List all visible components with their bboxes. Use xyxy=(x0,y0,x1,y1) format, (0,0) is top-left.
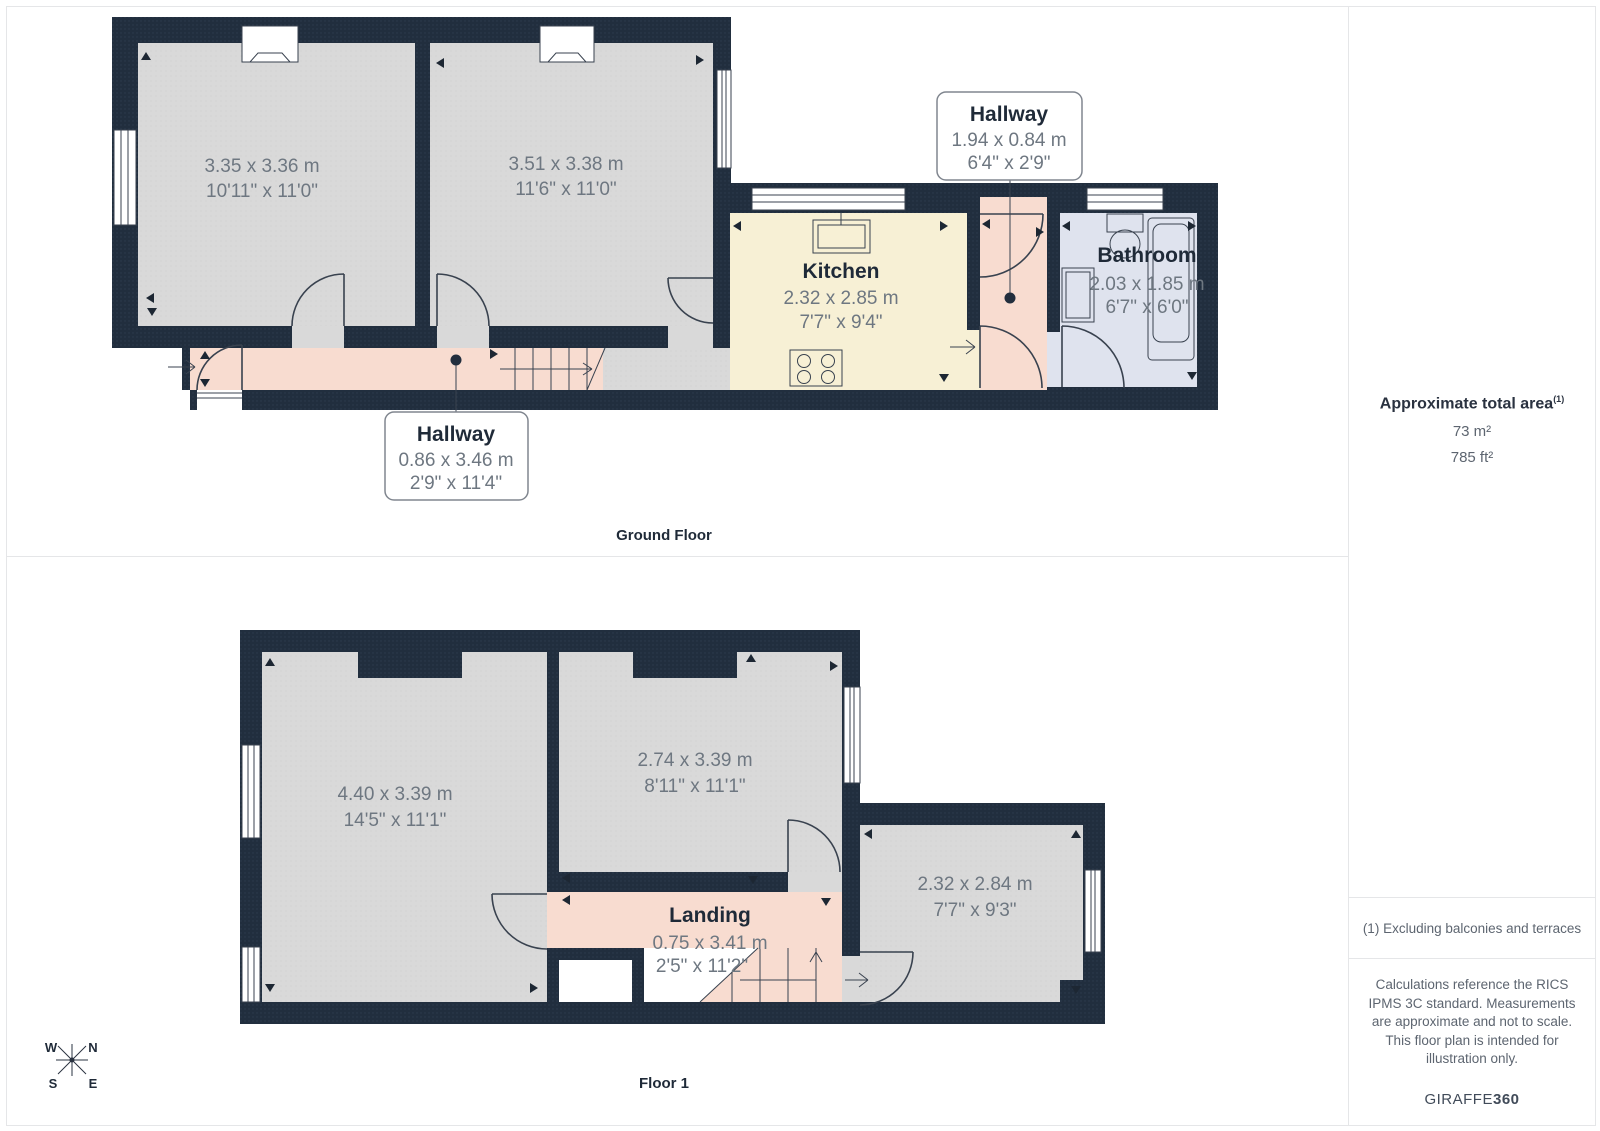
area-m2: 73 m² xyxy=(1453,423,1491,440)
hallway-upper-dim-m: 1.94 x 0.84 m xyxy=(951,130,1066,151)
landing-dim-ft: 2'5" x 11'2" xyxy=(656,956,748,977)
understairs-passage-floor xyxy=(603,348,730,390)
compass-north: N xyxy=(88,1040,97,1055)
room2-dim-m: 3.51 x 3.38 m xyxy=(508,154,623,175)
bathroom-dim-ft: 6'7" x 6'0" xyxy=(1105,297,1188,318)
disclaimer-box: Calculations reference the RICS IPMS 3C … xyxy=(1348,958,1596,1126)
window-room2-right xyxy=(717,70,731,168)
window-kitchen xyxy=(752,188,905,210)
room2-dim-ft: 11'6" x 11'0" xyxy=(515,179,616,200)
bedroom3-dim-ft: 7'7" x 9'3" xyxy=(933,900,1016,921)
floor1-panel: 4.40 x 3.39 m 14'5" x 11'1" 2.74 x 3.39 … xyxy=(6,556,1349,1126)
bedroom1-dim-ft: 14'5" x 11'1" xyxy=(344,810,447,831)
floor1-caption: Floor 1 xyxy=(639,1075,689,1092)
landing-name: Landing xyxy=(669,904,751,927)
hallway-upper-dim-ft: 6'4" x 2'9" xyxy=(967,153,1050,174)
room1-dim-ft: 10'11" x 11'0" xyxy=(206,181,318,202)
window-bedroom1-lower xyxy=(242,947,260,1002)
bedroom1-dim-m: 4.40 x 3.39 m xyxy=(337,784,452,805)
area-ft2: 785 ft² xyxy=(1451,449,1494,466)
compass-south: S xyxy=(49,1076,58,1091)
compass-west: W xyxy=(45,1040,58,1055)
footnote-box: (1) Excluding balconies and terraces xyxy=(1348,897,1596,959)
compass-icon: W N S E xyxy=(45,1040,98,1091)
footnote-marker: (1) xyxy=(1553,394,1564,404)
callout-anchor-dot xyxy=(451,355,462,366)
kitchen-dim-m: 2.32 x 2.85 m xyxy=(783,288,898,309)
bedroom3-dim-m: 2.32 x 2.84 m xyxy=(917,874,1032,895)
callout-anchor-dot xyxy=(1005,293,1016,304)
footnote-text: (1) Excluding balconies and terraces xyxy=(1363,921,1581,936)
window-bathroom xyxy=(1087,188,1163,210)
total-area-label: Approximate total area(1) xyxy=(1380,394,1564,413)
window-room1-left xyxy=(114,130,136,225)
bay-window-room2 xyxy=(540,26,594,62)
hallway-lower-dim-m: 0.86 x 3.46 m xyxy=(398,450,513,471)
bay-window-room1 xyxy=(242,26,298,62)
window-bedroom3 xyxy=(1085,870,1101,952)
floor1-plan: 4.40 x 3.39 m 14'5" x 11'1" 2.74 x 3.39 … xyxy=(7,557,1348,1125)
upper-hallway-floor xyxy=(980,197,1047,390)
room1-dim-m: 3.35 x 3.36 m xyxy=(204,156,319,177)
landing-dim-m: 0.75 x 3.41 m xyxy=(652,933,767,954)
kitchen-name: Kitchen xyxy=(802,260,879,283)
ground-floor-caption: Ground Floor xyxy=(616,527,712,544)
total-area-box: Approximate total area(1) 73 m² 785 ft² xyxy=(1348,6,1596,898)
floorplan-page: Hallway 1.94 x 0.84 m 6'4" x 2'9" Hallwa… xyxy=(0,0,1600,1131)
hallway-upper-name: Hallway xyxy=(970,103,1049,126)
disclaimer-text: Calculations reference the RICS IPMS 3C … xyxy=(1366,976,1578,1069)
kitchen-dim-ft: 7'7" x 9'4" xyxy=(799,312,882,333)
bathroom-name: Bathroom xyxy=(1097,244,1196,267)
compass-east: E xyxy=(89,1076,98,1091)
bedroom2-dim-m: 2.74 x 3.39 m xyxy=(637,750,752,771)
giraffe360-logo: GIRAFFE360 xyxy=(1424,1091,1519,1108)
ground-floor-panel: Hallway 1.94 x 0.84 m 6'4" x 2'9" Hallwa… xyxy=(6,6,1349,557)
stair-void xyxy=(559,960,632,1002)
window-bedroom1-upper xyxy=(242,745,260,838)
ground-floor-plan: Hallway 1.94 x 0.84 m 6'4" x 2'9" Hallwa… xyxy=(7,7,1348,556)
bedroom2-dim-ft: 8'11" x 11'1" xyxy=(644,776,745,797)
window-bedroom2 xyxy=(844,687,860,783)
hallway-lower-name: Hallway xyxy=(417,423,496,446)
bathroom-dim-m: 2.03 x 1.85 m xyxy=(1089,274,1204,295)
hallway-lower-dim-ft: 2'9" x 11'4" xyxy=(410,473,502,494)
